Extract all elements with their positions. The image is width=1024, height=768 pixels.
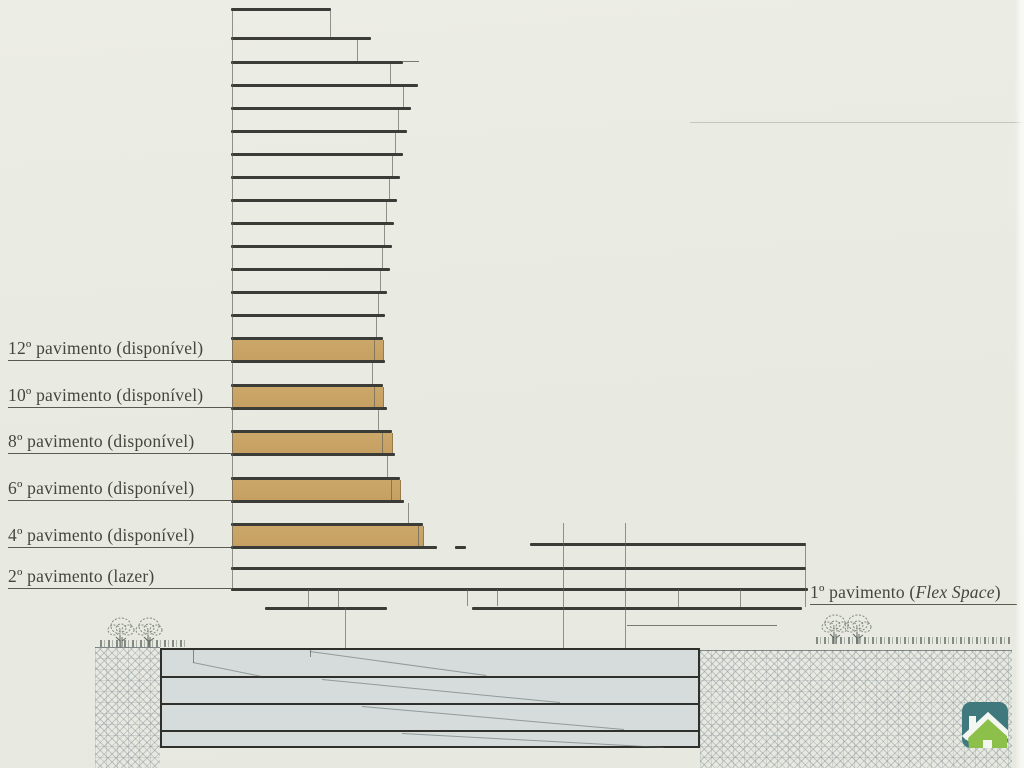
floor-slab bbox=[231, 199, 397, 202]
house-logo-icon bbox=[962, 702, 1008, 748]
column-line bbox=[338, 589, 339, 607]
highlighted-floor bbox=[232, 480, 401, 500]
floor-slab bbox=[231, 453, 395, 456]
column-line bbox=[392, 156, 393, 176]
label-text: ) bbox=[995, 582, 1001, 602]
floor-label-10: 10º pavimento (disponível) bbox=[8, 385, 231, 408]
paper-edge bbox=[1015, 0, 1024, 768]
floor-slab bbox=[472, 607, 802, 610]
floor-slab bbox=[231, 588, 808, 591]
floor-slab bbox=[231, 546, 437, 549]
floor-slab bbox=[231, 176, 400, 179]
section-drawing: 12º pavimento (disponível)10º pavimento … bbox=[0, 0, 1024, 768]
floor-slab bbox=[231, 61, 403, 64]
floor-slab bbox=[231, 37, 371, 40]
column-line bbox=[403, 87, 404, 107]
floor-slab bbox=[530, 543, 806, 546]
floor-slab bbox=[231, 8, 331, 11]
column-line bbox=[376, 317, 377, 337]
column-line bbox=[374, 387, 375, 407]
column-line bbox=[372, 363, 373, 384]
basement-ramp-line bbox=[193, 662, 262, 677]
floor-slab bbox=[231, 245, 392, 248]
column-line bbox=[378, 410, 379, 430]
column-line bbox=[389, 179, 390, 199]
floor-slab bbox=[231, 130, 407, 133]
tree-icon bbox=[842, 612, 874, 645]
column-line bbox=[678, 589, 679, 607]
floor-slab bbox=[231, 477, 400, 480]
floor-slab bbox=[231, 360, 385, 363]
column-line bbox=[330, 11, 331, 37]
floor-slab bbox=[231, 384, 383, 387]
floor-label-2: 2º pavimento (lazer) bbox=[8, 566, 231, 589]
floor-slab bbox=[231, 567, 806, 570]
tree-icon bbox=[133, 615, 165, 648]
column-line bbox=[378, 294, 379, 314]
basement-ramp-line bbox=[322, 679, 560, 703]
column-line bbox=[382, 433, 383, 453]
column-line bbox=[386, 202, 387, 222]
floor-label-4: 4º pavimento (disponível) bbox=[8, 525, 231, 548]
basement-ramp-line bbox=[362, 706, 624, 730]
highlighted-floor bbox=[232, 387, 384, 407]
column-line bbox=[408, 503, 409, 523]
floor-slab bbox=[231, 153, 403, 156]
floor-slab bbox=[231, 337, 383, 340]
column-line bbox=[625, 523, 626, 650]
floor-label-1-pavimento: 1º pavimento (Flex Space) bbox=[810, 582, 1017, 605]
floor-label-6: 6º pavimento (disponível) bbox=[8, 478, 231, 501]
column-line bbox=[418, 526, 419, 546]
floor-slab bbox=[265, 607, 387, 610]
label-text: 1º pavimento ( bbox=[810, 582, 915, 602]
basement-ramp-line bbox=[402, 733, 664, 748]
column-line bbox=[467, 589, 468, 606]
floor-slab bbox=[231, 107, 411, 110]
brand-logo bbox=[962, 702, 1008, 748]
column-line bbox=[374, 340, 375, 360]
column-line bbox=[805, 543, 806, 607]
floor-slab bbox=[231, 222, 394, 225]
floor-label-8: 8º pavimento (disponível) bbox=[8, 431, 231, 454]
floor-slab bbox=[231, 407, 387, 410]
floor-slab bbox=[231, 500, 404, 503]
basement-wall-tick bbox=[310, 650, 311, 657]
floor-slab bbox=[231, 268, 390, 271]
highlighted-floor bbox=[232, 340, 384, 360]
column-line bbox=[563, 523, 564, 648]
floor-label-12: 12º pavimento (disponível) bbox=[8, 338, 231, 361]
basement-level-divider bbox=[162, 676, 698, 678]
column-line bbox=[232, 11, 233, 588]
column-line bbox=[390, 64, 391, 84]
column-line bbox=[384, 225, 385, 245]
basement-level-divider bbox=[162, 703, 698, 705]
column-line bbox=[395, 133, 396, 153]
label-text-italic: Flex Space bbox=[915, 582, 994, 602]
column-line bbox=[380, 271, 381, 291]
column-line bbox=[387, 456, 388, 477]
highlighted-floor bbox=[232, 526, 424, 546]
scan-artifact-line bbox=[690, 122, 1024, 123]
column-line bbox=[740, 589, 741, 607]
basement-box bbox=[160, 648, 700, 748]
column-line bbox=[382, 248, 383, 268]
ground-hatch-left bbox=[95, 647, 160, 768]
floor-slab bbox=[231, 84, 418, 87]
column-line bbox=[345, 607, 346, 648]
floor-slab bbox=[231, 314, 385, 317]
column-line bbox=[398, 110, 399, 130]
floor-slab-thin bbox=[403, 61, 419, 62]
column-line bbox=[308, 589, 309, 607]
floor-slab bbox=[231, 291, 387, 294]
column-line bbox=[497, 589, 498, 606]
floor-slab bbox=[455, 546, 466, 549]
basement-ramp-line bbox=[310, 651, 486, 676]
floor-slab bbox=[231, 523, 423, 526]
floor-slab bbox=[231, 430, 392, 433]
column-line bbox=[391, 480, 392, 500]
floor-slab-thin bbox=[627, 625, 777, 626]
basement-wall-tick bbox=[193, 650, 194, 663]
column-line bbox=[357, 40, 358, 61]
highlighted-floor bbox=[232, 433, 393, 453]
basement-level-divider bbox=[162, 730, 698, 732]
